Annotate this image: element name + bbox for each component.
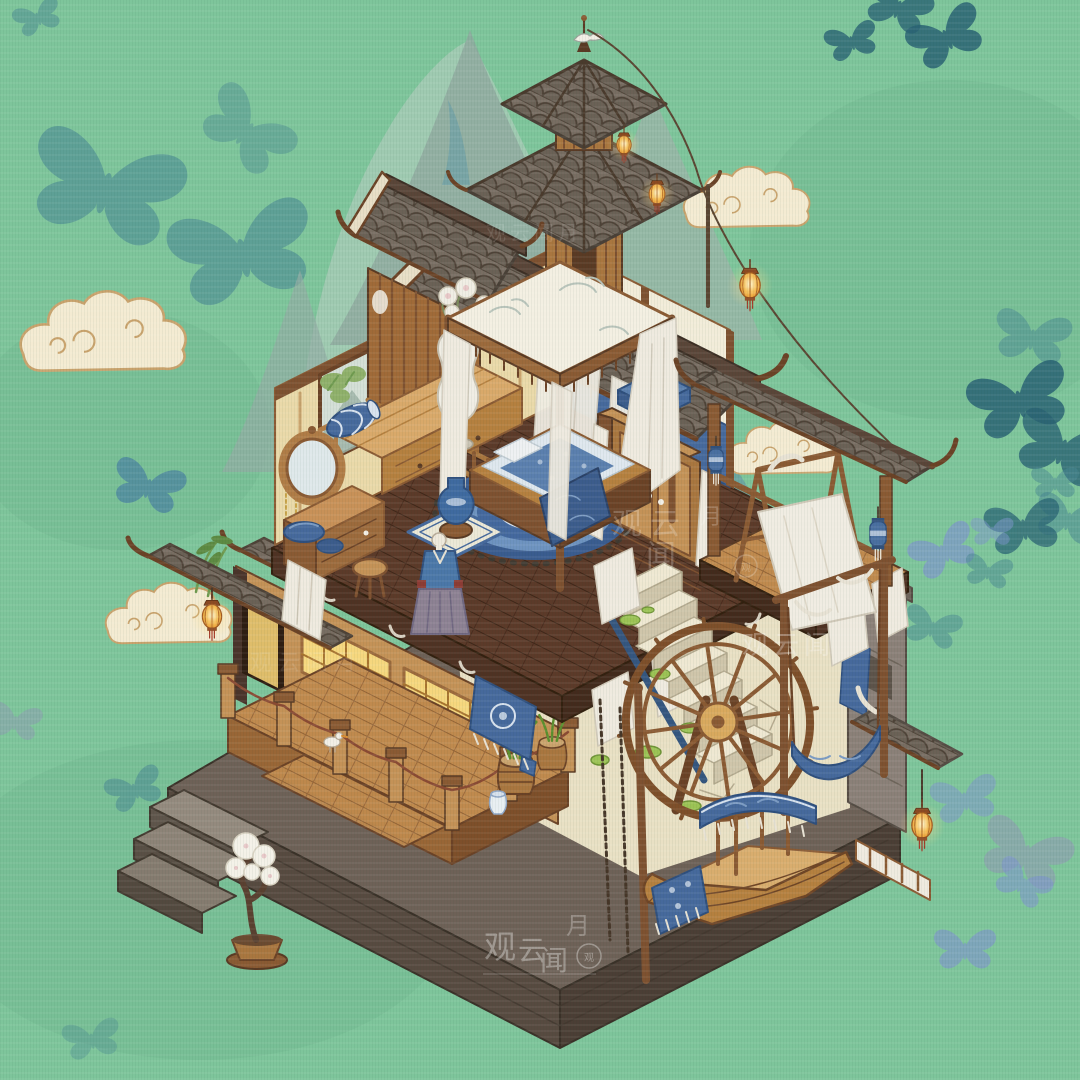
illustration-canvas: 观云 闻 月 观 观云闻 观 云 闻 月 观 观云闻月 观云闻月: [0, 0, 1080, 1080]
butterfly-icon: [962, 552, 1014, 590]
crane-decal: [372, 290, 388, 314]
butterfly-icon: [934, 929, 996, 968]
watermark-ghost-left: 观云闻月: [250, 650, 362, 675]
round-mirror: [287, 439, 337, 497]
watermark-text: 闻: [540, 946, 568, 977]
watermark-ghost-top: 观云闻月: [486, 222, 582, 245]
watermark-text: 观云: [612, 508, 688, 541]
butterfly-icon: [10, 0, 65, 40]
watermark-right: 观云闻: [742, 631, 835, 660]
butterfly-icon: [191, 77, 303, 184]
butterfly-icon: [900, 602, 965, 652]
seal-char: 观: [741, 562, 751, 574]
cloud-icon: [21, 291, 186, 370]
butterfly-icon: [1031, 467, 1079, 497]
porcelain-jar: [490, 791, 507, 814]
watermark-text: 闻: [646, 540, 676, 573]
butterfly-icon: [0, 700, 44, 742]
watermark-text: 观云闻月: [486, 222, 582, 245]
seal-char: 观: [584, 952, 594, 964]
watermark-text: 观云闻: [742, 631, 835, 660]
watermark-text: 观云闻月: [250, 650, 362, 675]
watermark-text: 月: [700, 504, 722, 529]
watermark-text: 观: [484, 929, 516, 965]
watermark-text: 月: [566, 914, 590, 940]
butterfly-icon: [19, 121, 192, 253]
isometric-house-illustration: 观云 闻 月 观 观云闻 观 云 闻 月 观 观云闻月 观云闻月: [0, 0, 1080, 1080]
stool: [353, 559, 387, 598]
butterfly-icon: [822, 18, 881, 63]
